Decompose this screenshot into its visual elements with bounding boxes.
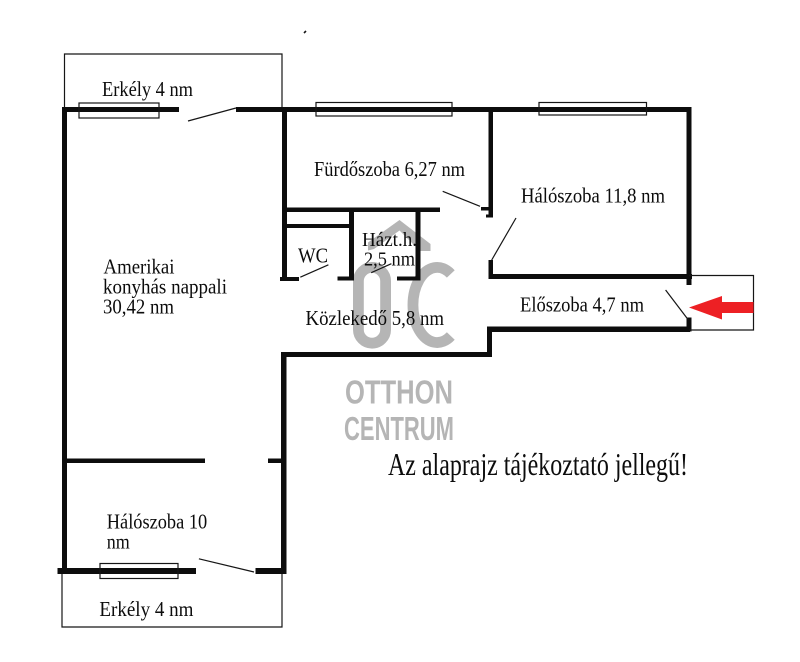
svg-text:Erkély 4 nm: Erkély 4 nm bbox=[99, 597, 193, 621]
svg-text:CENTRUM: CENTRUM bbox=[344, 410, 454, 447]
svg-text:Közlekedő 5,8 nm: Közlekedő 5,8 nm bbox=[306, 306, 445, 330]
svg-text:OTTHON: OTTHON bbox=[345, 374, 453, 411]
svg-text:Fürdőszoba 6,27 nm: Fürdőszoba 6,27 nm bbox=[314, 157, 465, 181]
svg-text:30,42 nm: 30,42 nm bbox=[103, 295, 174, 319]
svg-text:Erkély 4 nm: Erkély 4 nm bbox=[102, 77, 193, 101]
svg-text:WC: WC bbox=[298, 244, 328, 268]
svg-text:2,5 nm: 2,5 nm bbox=[364, 249, 415, 271]
svg-text:nm: nm bbox=[107, 530, 130, 554]
svg-text:Előszoba 4,7 nm: Előszoba 4,7 nm bbox=[520, 293, 644, 317]
svg-text:Hálószoba 11,8 nm: Hálószoba 11,8 nm bbox=[521, 184, 665, 208]
svg-text:Az alaprajz tájékoztató jelleg: Az alaprajz tájékoztató jellegű! bbox=[388, 446, 688, 482]
